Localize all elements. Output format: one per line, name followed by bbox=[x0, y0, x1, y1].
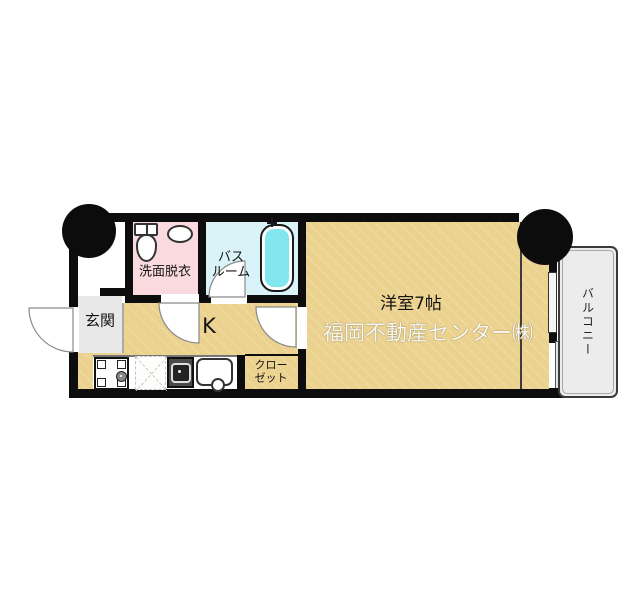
pillar-icon bbox=[517, 209, 573, 265]
bathtub-icon bbox=[260, 224, 294, 292]
bathroom-label-line2: ルーム bbox=[212, 265, 251, 280]
sliding-window-icon bbox=[548, 272, 557, 333]
washroom-door-swing-arc-icon bbox=[159, 303, 199, 343]
balcony-label: バルコニー bbox=[580, 287, 597, 357]
closet-label-line2: ゼット bbox=[255, 371, 288, 384]
entrance-door-swing-arc-icon bbox=[29, 308, 73, 352]
closet-label: クロー ゼット bbox=[255, 359, 288, 384]
bathroom-label-line1: バス bbox=[218, 250, 244, 265]
pillar-icon bbox=[62, 204, 116, 258]
floorplan: バルコニー 洗面脱衣 バス ルーム 玄関 K クロー ゼット 洋室7帖 福岡不動… bbox=[0, 0, 640, 604]
door-swing-arcs bbox=[0, 0, 640, 604]
washing-machine-icon bbox=[94, 357, 129, 390]
balcony: バルコニー bbox=[558, 246, 618, 398]
bath-faucet-tick bbox=[267, 222, 277, 224]
gas-stove-icon bbox=[167, 357, 194, 388]
entrance-label: 玄関 bbox=[85, 312, 115, 329]
refrigerator-space-icon bbox=[135, 356, 166, 390]
kitchen-label: K bbox=[202, 314, 216, 338]
room-door-swing-arc-icon bbox=[256, 307, 296, 347]
closet-label-line1: クロー bbox=[255, 358, 288, 371]
washroom-label: 洗面脱衣 bbox=[139, 266, 191, 281]
kitchen-sink-icon bbox=[196, 358, 233, 386]
bathroom-label: バス ルーム bbox=[212, 251, 251, 281]
washbasin-icon bbox=[167, 225, 193, 243]
main-room-label: 洋室7帖 bbox=[380, 295, 442, 315]
watermark-text: 福岡不動産センター㈱ bbox=[323, 321, 533, 345]
